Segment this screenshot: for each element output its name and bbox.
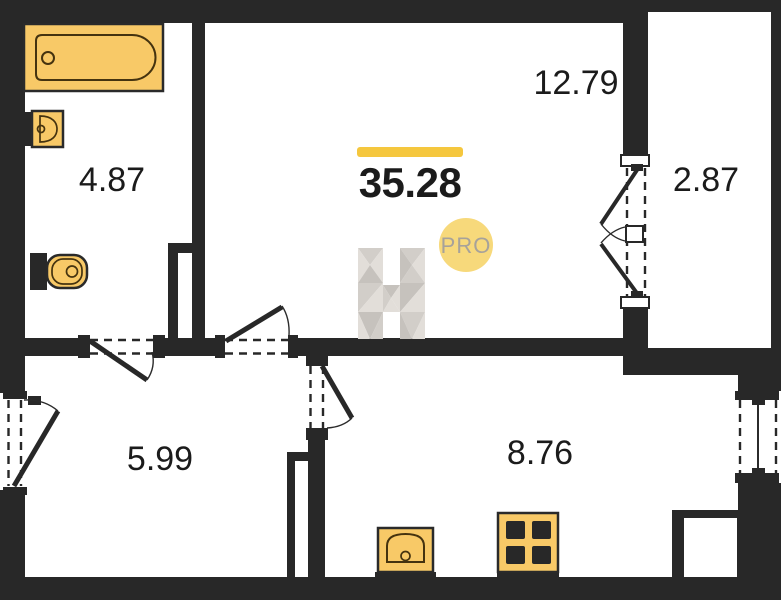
watermark-h-icon (358, 248, 425, 339)
toilet-icon (30, 253, 87, 290)
floor-plan-drawing: PRO (0, 0, 781, 600)
room-label-living-room: 12.79 (533, 66, 618, 100)
floor-plan: PRO 35.28 12.79 4.87 2.87 5.99 8.76 (0, 0, 781, 600)
room-label-hallway: 5.99 (127, 442, 193, 476)
living-room-door (225, 306, 289, 354)
pro-badge-label: PRO (441, 233, 492, 258)
bathroom-door (90, 340, 153, 380)
entrance-door (3, 391, 58, 495)
total-area-accent-bar (357, 147, 463, 157)
kitchen-window (735, 391, 779, 483)
bathtub-icon (24, 24, 163, 91)
stove-icon (497, 513, 559, 582)
balcony-door (601, 155, 649, 308)
room-label-balcony: 2.87 (673, 163, 739, 197)
room-label-kitchen: 8.76 (507, 436, 573, 470)
door-handle (626, 226, 643, 242)
kitchen-sink-icon (375, 528, 436, 582)
room-label-bathroom: 4.87 (79, 163, 145, 197)
kitchen-door (311, 366, 353, 428)
total-area-value: 35.28 (359, 162, 462, 204)
sink-icon (22, 111, 63, 147)
pro-badge: PRO (439, 218, 493, 272)
